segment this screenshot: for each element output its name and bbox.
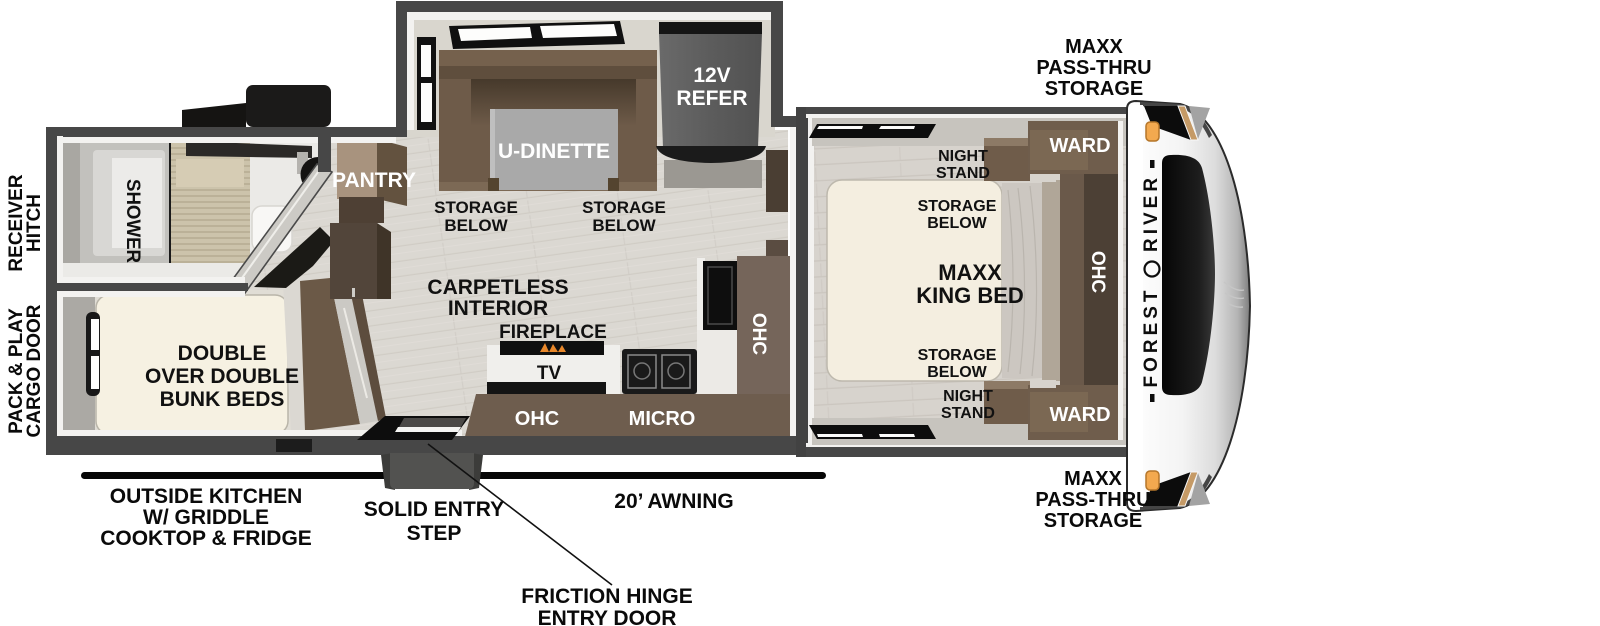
svg-text:OHC: OHC — [515, 408, 559, 430]
svg-text:COOKTOP & FRIDGE: COOKTOP & FRIDGE — [100, 527, 312, 550]
svg-text:OUTSIDE KITCHEN: OUTSIDE KITCHEN — [110, 485, 303, 508]
svg-text:BELOW: BELOW — [927, 364, 987, 381]
svg-text:TV: TV — [537, 363, 562, 384]
svg-text:NIGHT: NIGHT — [943, 388, 993, 405]
svg-text:STORAGE: STORAGE — [1044, 510, 1143, 532]
svg-text:OHC: OHC — [748, 313, 769, 356]
svg-text:SHOWER: SHOWER — [122, 179, 143, 263]
svg-text:MAXX: MAXX — [938, 260, 1002, 285]
svg-text:STORAGE: STORAGE — [1045, 78, 1144, 100]
svg-text:STORAGE: STORAGE — [582, 198, 666, 217]
svg-text:MICRO: MICRO — [629, 408, 696, 430]
svg-text:PASS-THRU: PASS-THRU — [1036, 57, 1151, 79]
svg-text:STORAGE: STORAGE — [918, 198, 997, 215]
svg-text:PASS-THRU: PASS-THRU — [1035, 489, 1150, 511]
svg-text:STEP: STEP — [407, 522, 462, 545]
svg-text:WARD: WARD — [1049, 135, 1110, 157]
svg-text:RIVER: RIVER — [1141, 174, 1162, 252]
svg-text:STAND: STAND — [936, 165, 990, 182]
svg-text:PANTRY: PANTRY — [332, 169, 416, 192]
svg-text:STORAGE: STORAGE — [918, 347, 997, 364]
svg-text:BUNK BEDS: BUNK BEDS — [160, 388, 285, 411]
svg-text:W/ GRIDDLE: W/ GRIDDLE — [143, 506, 269, 529]
svg-text:STORAGE: STORAGE — [434, 198, 518, 217]
svg-text:20’ AWNING: 20’ AWNING — [614, 490, 733, 513]
svg-text:BELOW: BELOW — [927, 215, 987, 232]
svg-text:INTERIOR: INTERIOR — [448, 297, 548, 320]
svg-text:MAXX: MAXX — [1064, 468, 1122, 490]
svg-text:KING BED: KING BED — [916, 283, 1024, 308]
svg-text:U-DINETTE: U-DINETTE — [498, 140, 610, 163]
svg-text:12V: 12V — [693, 64, 730, 87]
svg-text:CARGO DOOR: CARGO DOOR — [24, 304, 45, 437]
svg-text:CARPETLESS: CARPETLESS — [427, 276, 568, 299]
svg-text:ENTRY DOOR: ENTRY DOOR — [538, 607, 677, 626]
svg-text:FRICTION HINGE: FRICTION HINGE — [521, 585, 693, 608]
svg-text:WARD: WARD — [1049, 404, 1110, 426]
svg-text:NIGHT: NIGHT — [938, 148, 988, 165]
svg-text:OHC: OHC — [1087, 251, 1108, 294]
svg-text:MAXX: MAXX — [1065, 36, 1123, 58]
svg-text:DOUBLE: DOUBLE — [178, 342, 267, 365]
svg-text:FIREPLACE: FIREPLACE — [499, 322, 607, 343]
svg-text:BELOW: BELOW — [444, 216, 508, 235]
svg-text:REFER: REFER — [676, 87, 747, 110]
svg-text:SOLID ENTRY: SOLID ENTRY — [364, 498, 504, 521]
svg-text:HITCH: HITCH — [24, 194, 45, 252]
svg-text:STAND: STAND — [941, 405, 995, 422]
svg-text:OVER DOUBLE: OVER DOUBLE — [145, 365, 299, 388]
svg-text:FOREST: FOREST — [1141, 286, 1162, 387]
svg-text:BELOW: BELOW — [592, 216, 656, 235]
